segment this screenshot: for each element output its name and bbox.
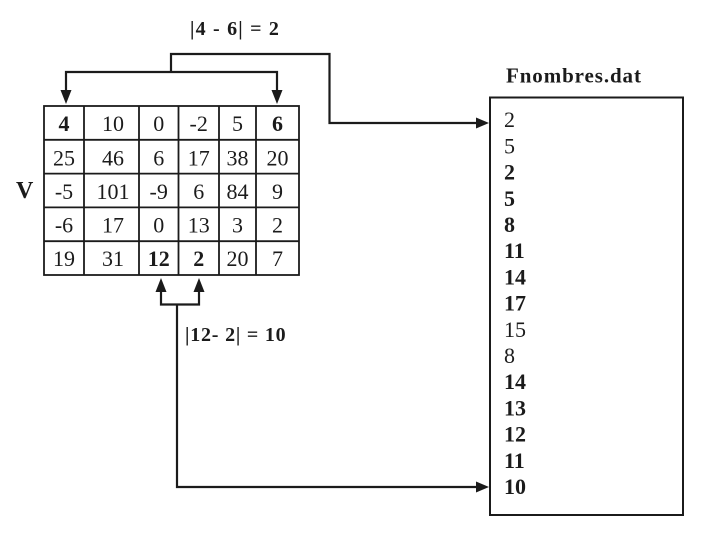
svg-text:20: 20 bbox=[267, 146, 289, 171]
svg-text:-9: -9 bbox=[150, 179, 168, 204]
svg-text:101: 101 bbox=[97, 179, 130, 204]
svg-text:5: 5 bbox=[504, 133, 515, 158]
svg-text:14: 14 bbox=[504, 264, 526, 289]
svg-text:9: 9 bbox=[272, 179, 283, 204]
svg-text:2: 2 bbox=[504, 160, 515, 185]
svg-text:11: 11 bbox=[504, 238, 525, 263]
svg-text:Fnombres.dat: Fnombres.dat bbox=[506, 64, 642, 88]
svg-text:-5: -5 bbox=[55, 179, 73, 204]
svg-text:0: 0 bbox=[153, 111, 164, 136]
svg-text:12: 12 bbox=[504, 422, 526, 447]
svg-text:5: 5 bbox=[232, 111, 243, 136]
svg-text:2: 2 bbox=[504, 107, 515, 132]
svg-text:13: 13 bbox=[188, 213, 210, 238]
svg-text:17: 17 bbox=[102, 213, 124, 238]
svg-text:38: 38 bbox=[227, 146, 249, 171]
svg-text:11: 11 bbox=[504, 448, 525, 473]
svg-text:46: 46 bbox=[102, 146, 124, 171]
svg-text:6: 6 bbox=[153, 146, 164, 171]
svg-text:6: 6 bbox=[193, 179, 204, 204]
svg-text:14: 14 bbox=[504, 369, 526, 394]
svg-text:3: 3 bbox=[232, 213, 243, 238]
svg-text:17: 17 bbox=[188, 146, 210, 171]
svg-text:8: 8 bbox=[504, 343, 515, 368]
svg-text:10: 10 bbox=[102, 111, 124, 136]
svg-text:2: 2 bbox=[193, 246, 204, 271]
svg-text:-6: -6 bbox=[55, 213, 73, 238]
svg-text:20: 20 bbox=[227, 246, 249, 271]
svg-text:|12- 2| = 10: |12- 2| = 10 bbox=[185, 324, 286, 346]
svg-text:5: 5 bbox=[504, 186, 515, 211]
svg-text:|4 - 6| = 2: |4 - 6| = 2 bbox=[190, 18, 280, 40]
svg-text:84: 84 bbox=[227, 179, 249, 204]
svg-text:4: 4 bbox=[59, 111, 70, 136]
svg-text:15: 15 bbox=[504, 317, 526, 342]
svg-text:13: 13 bbox=[504, 395, 526, 420]
svg-text:12: 12 bbox=[148, 246, 170, 271]
svg-text:25: 25 bbox=[53, 146, 75, 171]
svg-text:31: 31 bbox=[102, 246, 124, 271]
svg-text:8: 8 bbox=[504, 212, 515, 237]
svg-text:17: 17 bbox=[504, 291, 526, 316]
svg-text:2: 2 bbox=[272, 213, 283, 238]
svg-text:V: V bbox=[16, 178, 34, 204]
svg-text:19: 19 bbox=[53, 246, 75, 271]
svg-text:7: 7 bbox=[272, 246, 283, 271]
svg-text:10: 10 bbox=[504, 474, 526, 499]
svg-text:0: 0 bbox=[153, 213, 164, 238]
svg-text:-2: -2 bbox=[190, 111, 208, 136]
svg-text:6: 6 bbox=[272, 111, 283, 136]
